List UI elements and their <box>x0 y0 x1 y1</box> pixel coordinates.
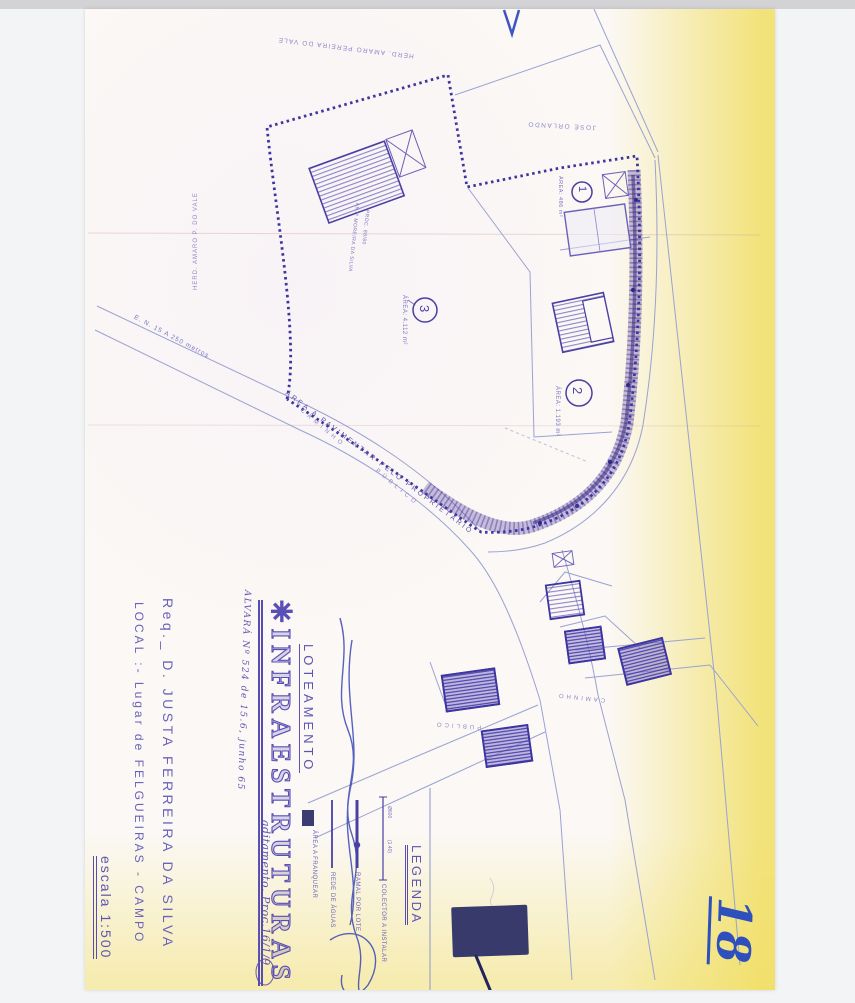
fold-creases <box>88 233 760 426</box>
neighbor-west-label: HERD. AMARO P. DO VALE <box>193 192 199 290</box>
subtitle-loteamento: LOTEAMENTO <box>299 644 316 773</box>
lot-2-area-label: ÁREA: 1.193 m² <box>554 386 560 436</box>
document-page: ✳INFRAESTRUTURAS ALVARÁ Nº 524 de 15.6, … <box>85 9 775 990</box>
legend-label-area-franquear: ÁREA A FRANQUEAR <box>311 830 317 898</box>
lot-1-area-label: ÁREA: 486 m² <box>557 176 563 217</box>
stamp-square <box>451 878 529 990</box>
scanned-plan-viewer: ✳INFRAESTRUTURAS ALVARÁ Nº 524 de 15.6, … <box>0 0 855 1003</box>
local-line: LOCAL :- Lugar de FELGUEIRAS - CAMPO <box>132 602 146 944</box>
legend-label-rede-aguas: REDE DE ÁGUAS <box>329 872 335 928</box>
legend-note-diameter: Ø600 <box>386 806 392 818</box>
legend-title: LEGENDA <box>405 845 424 925</box>
sheet-number: 18 <box>707 896 758 966</box>
aditamento-note: aditamento. Proc.16/1/9 <box>258 820 272 966</box>
viewer-top-bar <box>0 0 855 9</box>
lot-2-number: 2 <box>570 387 585 394</box>
legend-note-depth: (1.40) <box>386 840 392 853</box>
lot-3-number: 3 <box>417 305 432 312</box>
lot-1-number: 1 <box>576 186 588 192</box>
requerente-line: Req._ D. JUSTA FERREIRA DA SILVA <box>160 598 176 950</box>
check-mark <box>504 10 519 34</box>
escala-line: escala 1:500 <box>93 856 114 959</box>
legend-label-colector: COLECTOR A INSTALAR <box>380 884 386 962</box>
legend-label-ramal: RAMAL POR LOTE <box>354 872 360 931</box>
signature <box>330 618 376 990</box>
lot-3-area-label: ÁREA: 4.112 m² <box>401 295 407 345</box>
